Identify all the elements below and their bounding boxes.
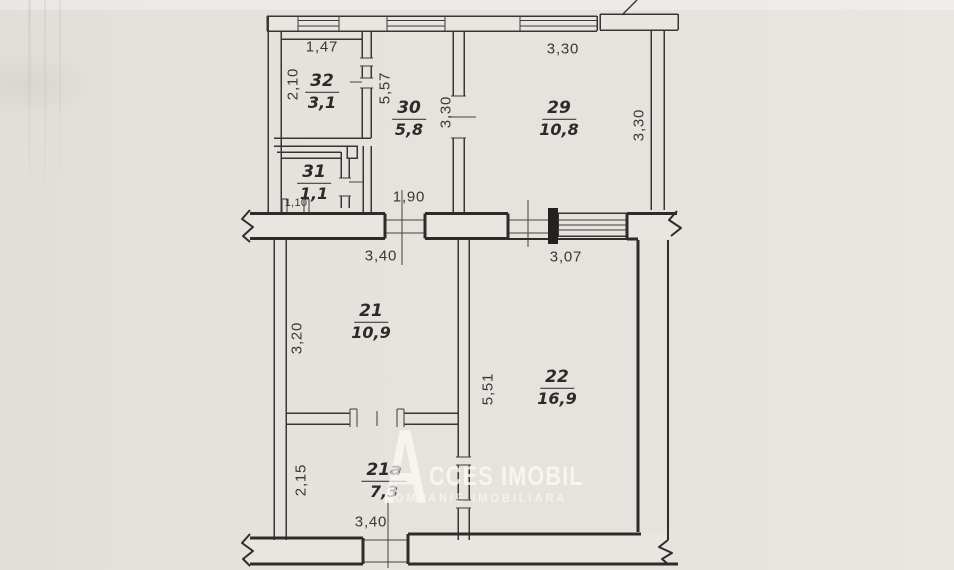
room-number: 21 bbox=[354, 303, 388, 323]
room-area: 16,9 bbox=[537, 390, 576, 408]
leader-line bbox=[622, 0, 637, 15]
dimension-label: 2,10 bbox=[285, 68, 302, 100]
room-number: 32 bbox=[305, 73, 339, 93]
dimension-label: 1,47 bbox=[306, 39, 338, 56]
room-label-29: 29 10,8 bbox=[539, 100, 578, 138]
room-label-21: 21 10,9 bbox=[351, 303, 390, 341]
room-label-30: 30 5,8 bbox=[392, 100, 426, 138]
floorplan-walls bbox=[0, 0, 954, 570]
dimension-label: 3,07 bbox=[550, 249, 582, 266]
room-area: 7,3 bbox=[370, 483, 398, 501]
dimension-label: 3,40 bbox=[355, 514, 387, 531]
room-number: 29 bbox=[542, 100, 576, 120]
dimension-label: 1,10 bbox=[285, 197, 308, 209]
room-number: 21a bbox=[361, 462, 406, 482]
dimension-label: 5,51 bbox=[480, 373, 497, 405]
dimension-label: 1,90 bbox=[393, 189, 425, 206]
room-label-21a: 21a 7,3 bbox=[361, 462, 406, 500]
solid-pier bbox=[548, 208, 558, 244]
room-area: 10,8 bbox=[539, 121, 578, 139]
room-number: 22 bbox=[540, 369, 574, 389]
room-number: 30 bbox=[392, 100, 426, 120]
dimension-label: 3,40 bbox=[365, 248, 397, 265]
dimension-label: 3,30 bbox=[547, 41, 579, 58]
room-area: 5,8 bbox=[395, 121, 423, 139]
room-number: 31 bbox=[297, 164, 331, 184]
dimension-label: 3,20 bbox=[289, 322, 306, 354]
break-symbols bbox=[242, 210, 681, 566]
room-label-32: 32 3,1 bbox=[305, 73, 339, 111]
floorplan-scan: 32 3,1 30 5,8 29 10,8 31 1,1 21 10,9 22 … bbox=[0, 0, 954, 570]
dimension-label: 5,57 bbox=[377, 72, 394, 104]
room-area: 3,1 bbox=[308, 94, 336, 112]
thick-walls bbox=[250, 214, 678, 565]
room-area: 10,9 bbox=[351, 324, 390, 342]
room-label-22: 22 16,9 bbox=[537, 369, 576, 407]
dimension-label: 2,15 bbox=[293, 464, 310, 496]
dimension-label: 3,30 bbox=[438, 96, 455, 128]
dimension-label: 3,30 bbox=[631, 109, 648, 141]
